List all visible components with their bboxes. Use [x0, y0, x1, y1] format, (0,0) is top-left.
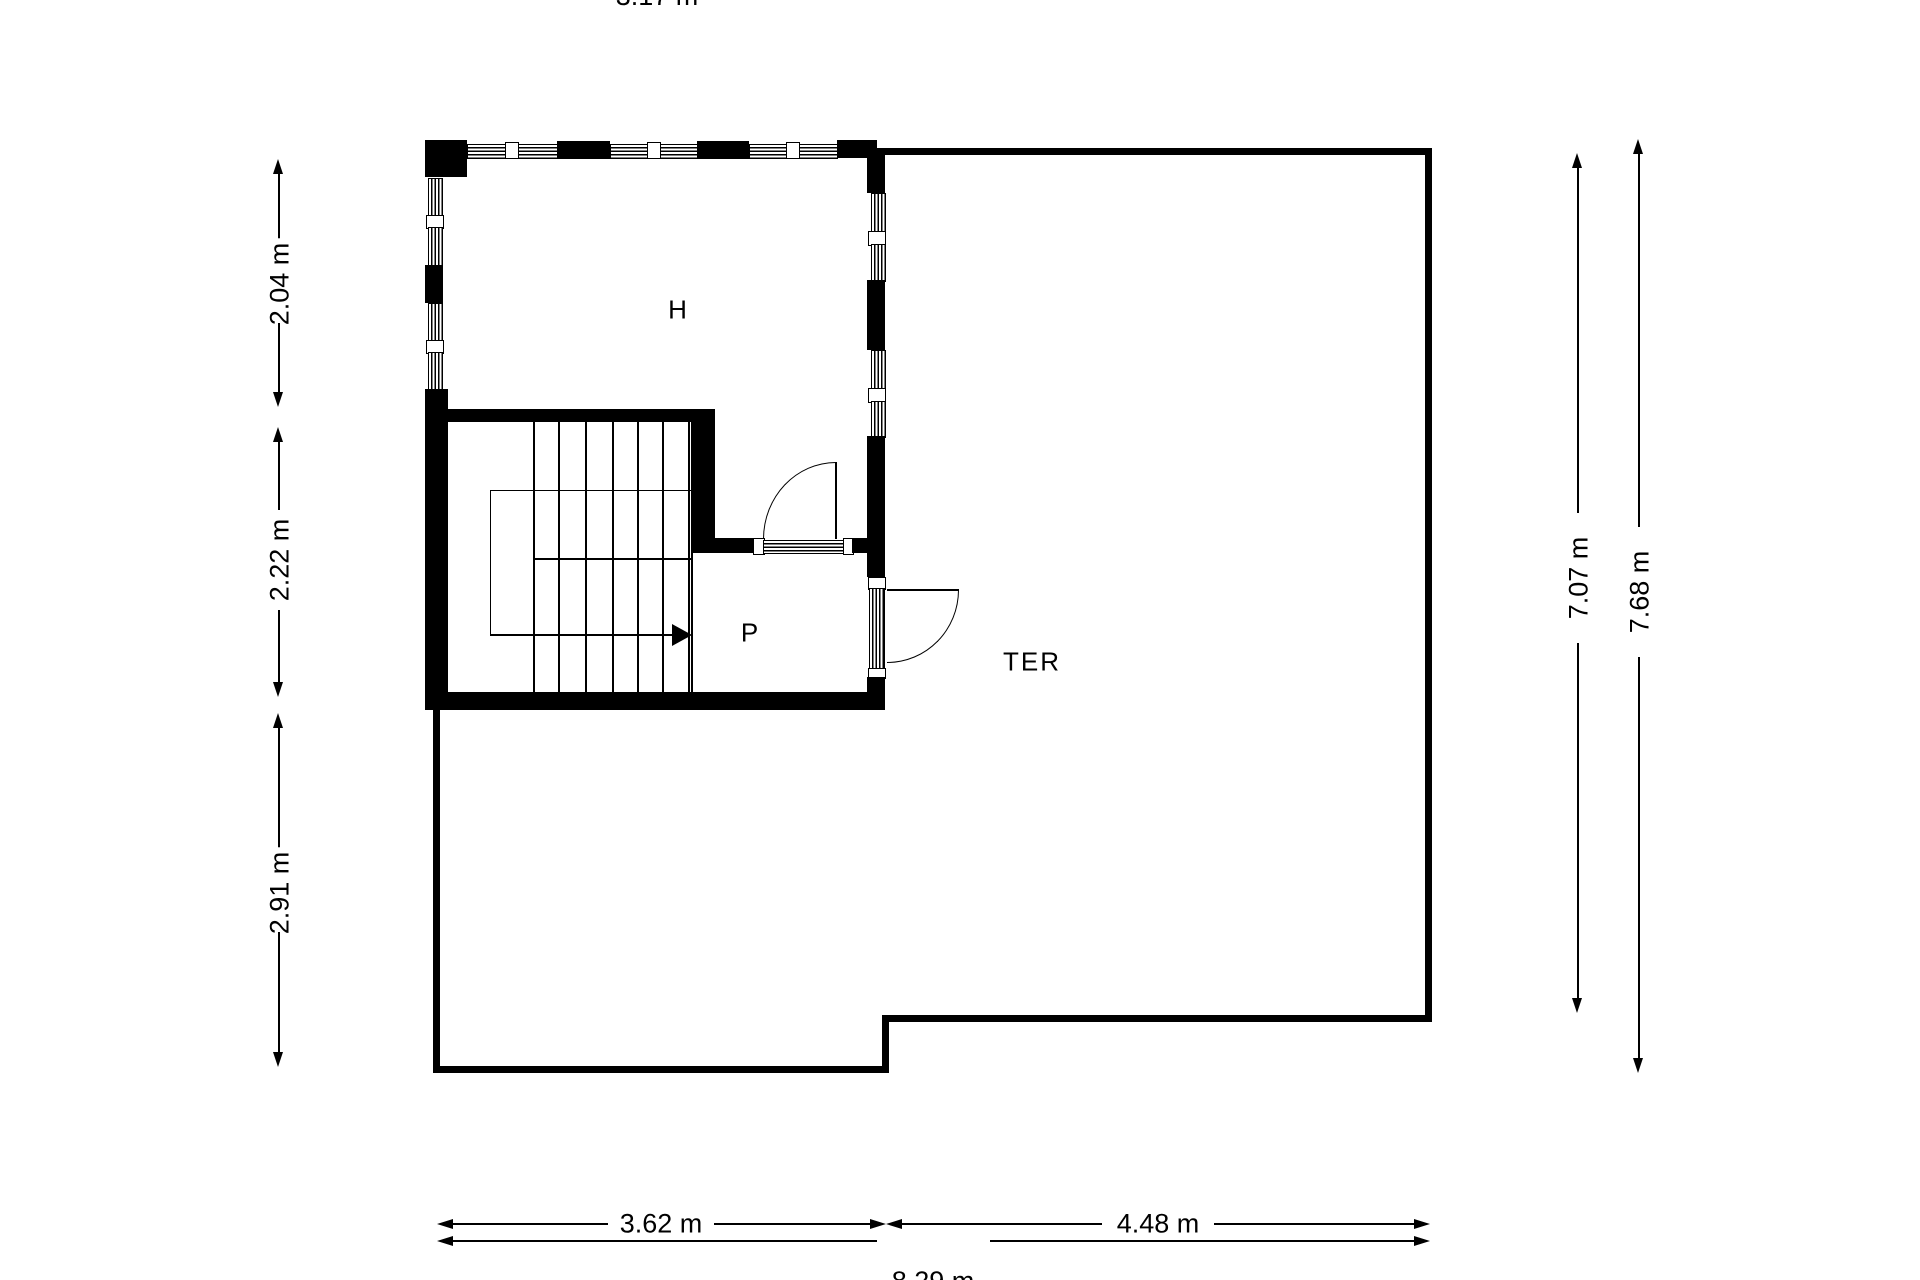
stair-bottom-wall — [425, 692, 885, 710]
window-segment — [428, 352, 443, 391]
stair-direction-arrow — [672, 624, 692, 646]
dimension-line — [990, 1240, 1414, 1242]
window-segment — [428, 178, 443, 217]
door-threshold — [869, 588, 885, 670]
room-label-ter: TER — [1003, 647, 1061, 678]
window-segment — [660, 144, 698, 159]
window-segment — [871, 401, 886, 438]
window-jamb — [505, 142, 519, 159]
window-segment — [871, 350, 886, 390]
room-label-h: H — [668, 295, 688, 326]
terrace-bottom-right-wall — [882, 1015, 1432, 1022]
room-label-p: P — [741, 618, 759, 649]
window-segment — [467, 144, 508, 159]
wall-segment — [425, 265, 443, 303]
wall-segment — [867, 436, 885, 577]
dimension-label-bottom-total: 8.29 m — [888, 1266, 979, 1280]
window-segment — [749, 144, 788, 159]
wall-segment — [697, 141, 749, 159]
terrace-top-wall — [877, 148, 1432, 155]
terrace-bottom-left-wall — [433, 1066, 889, 1073]
dimension-arrow-down — [273, 1052, 283, 1067]
wall-corner-top-left — [425, 140, 467, 177]
dimension-arrow-down — [273, 392, 283, 407]
terrace-left-wall — [433, 710, 440, 1073]
dimension-label-left-top: 2.04 m — [265, 239, 296, 330]
stair-walk-outline — [490, 490, 693, 636]
dimension-line — [1577, 161, 1579, 513]
window-segment — [799, 144, 838, 159]
window-segment — [871, 193, 886, 233]
dimension-arrow-down — [1572, 998, 1582, 1013]
dimension-line — [278, 721, 280, 855]
dimension-line — [714, 1223, 871, 1225]
dimension-line — [1638, 657, 1640, 1059]
dimension-arrow-down — [1633, 1058, 1643, 1073]
floorplan-canvas: H P TER 2.04 m 2.22 m 2.91 m 7.07 m 7.68… — [0, 0, 1920, 1280]
dimension-label-right-outer: 7.68 m — [1625, 547, 1656, 638]
dimension-line — [453, 1223, 608, 1225]
terrace-right-wall — [1425, 148, 1432, 1022]
dimension-arrow-right — [870, 1219, 886, 1229]
door-swing-arc — [763, 462, 836, 539]
dimension-line — [453, 1240, 877, 1242]
window-segment — [610, 144, 649, 159]
window-jamb — [786, 142, 800, 159]
dimension-line — [278, 323, 280, 393]
wall-segment — [867, 280, 885, 350]
door-threshold — [763, 540, 845, 554]
dimension-line — [1638, 147, 1640, 527]
dimension-label-top-right: 4.44 m — [1135, 0, 1226, 7]
dimension-line — [902, 1223, 1102, 1225]
dimension-line — [278, 167, 280, 245]
dimension-label-left-bottom: 2.91 m — [265, 848, 296, 939]
door-wall-stub — [852, 538, 867, 553]
dimension-line — [278, 932, 280, 1053]
stair-right-wall — [692, 409, 715, 553]
stair-left-wall — [425, 389, 448, 710]
stair-direction-line — [490, 634, 674, 636]
dimension-line — [1214, 1223, 1414, 1225]
dimension-line — [1577, 643, 1579, 999]
dimension-line — [278, 435, 280, 510]
dimension-arrow-right — [1414, 1236, 1430, 1246]
stair-top-wall — [425, 409, 715, 422]
dimension-line — [278, 610, 280, 684]
window-segment — [428, 303, 443, 342]
dimension-arrow-left — [437, 1236, 453, 1246]
dimension-arrow-down — [273, 682, 283, 697]
dimension-arrow-right — [1414, 1219, 1430, 1229]
terrace-step-wall — [882, 1015, 889, 1073]
door-swing-arc — [887, 590, 959, 663]
window-segment — [428, 227, 443, 267]
window-jamb — [647, 142, 661, 159]
dimension-arrow-left — [886, 1219, 902, 1229]
window-segment — [518, 144, 558, 159]
dimension-arrow-left — [437, 1219, 453, 1229]
dimension-label-bottom-right: 4.48 m — [1113, 1209, 1204, 1240]
dimension-label-top-left: 3.17 m — [612, 0, 703, 12]
dimension-label-left-mid: 2.22 m — [265, 515, 296, 606]
dimension-label-bottom-left: 3.62 m — [616, 1209, 707, 1240]
wall-segment — [557, 141, 610, 159]
door-wall-stub — [692, 538, 753, 553]
dimension-label-right-inner: 7.07 m — [1564, 533, 1595, 624]
window-segment — [871, 244, 886, 282]
